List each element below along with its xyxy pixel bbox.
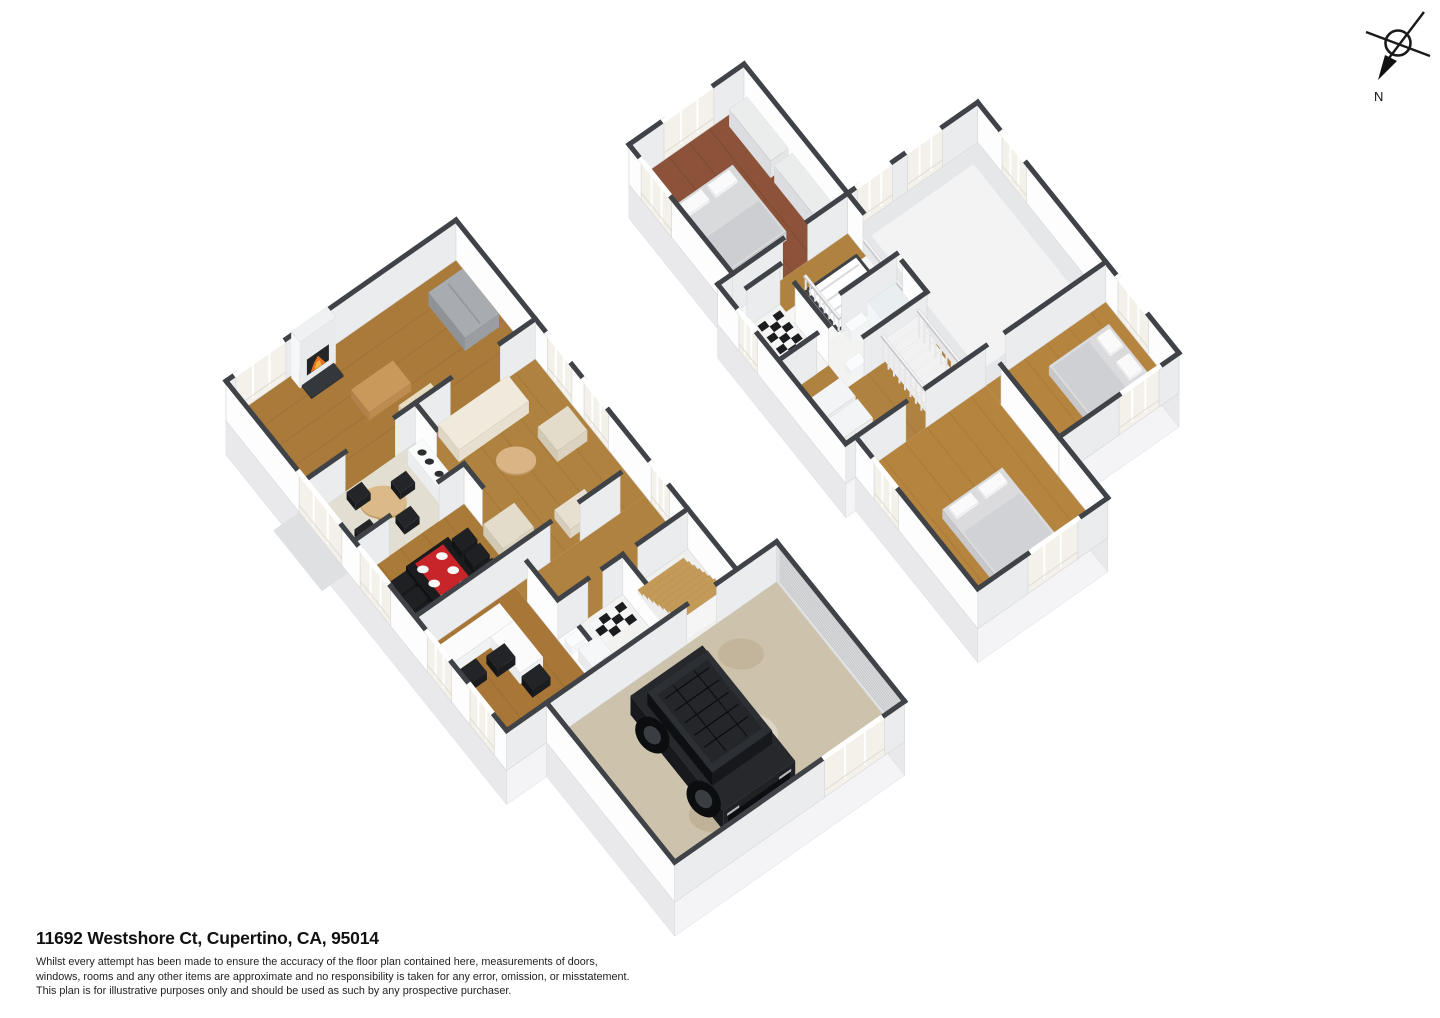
floorplan-canvas: [0, 0, 1440, 1018]
compass-needle: [1378, 55, 1397, 80]
disclaimer-line-3: This plan is for illustrative purposes o…: [36, 984, 676, 999]
address-block: 11692 Westshore Ct, Cupertino, CA, 95014…: [36, 928, 676, 999]
address-title: 11692 Westshore Ct, Cupertino, CA, 95014: [36, 928, 676, 949]
floorplan-image: N 11692 Westshore Ct, Cupertino, CA, 950…: [0, 0, 1440, 1018]
disclaimer-line-2: windows, rooms and any other items are a…: [36, 970, 676, 985]
compass-north-label: N: [1374, 89, 1383, 104]
disclaimer-line-1: Whilst every attempt has been made to en…: [36, 955, 676, 970]
compass-icon: N: [1352, 6, 1438, 110]
